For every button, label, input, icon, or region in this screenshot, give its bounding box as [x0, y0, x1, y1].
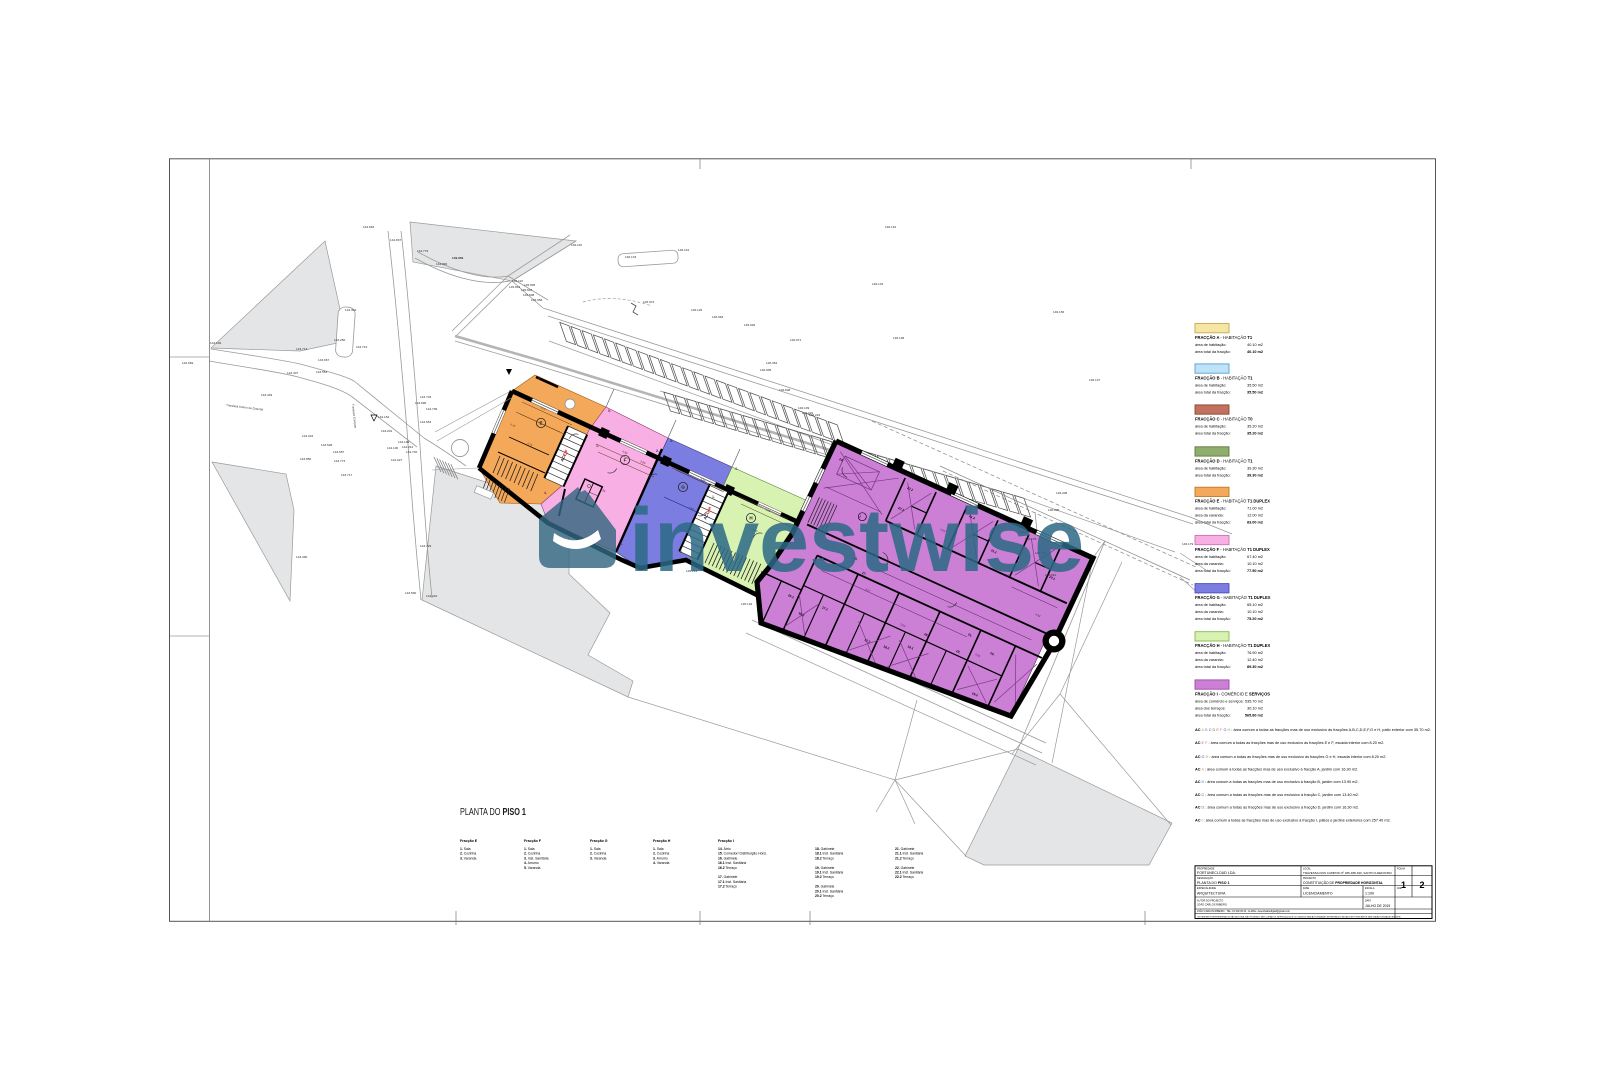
svg-text:143.657: 143.657 — [333, 450, 344, 454]
svg-text:145.194: 145.194 — [741, 602, 752, 606]
svg-text:143.554: 143.554 — [316, 370, 327, 374]
svg-text:17. Gabinete: 17. Gabinete — [718, 875, 738, 879]
svg-text:145.905: 145.905 — [524, 283, 535, 287]
svg-text:18. Gabinete: 18. Gabinete — [815, 847, 835, 851]
svg-text:144.890: 144.890 — [436, 262, 447, 266]
svg-text:22.2 Terraço: 22.2 Terraço — [895, 875, 914, 879]
svg-text:146.156: 146.156 — [1053, 310, 1064, 314]
svg-text:FRACÇÃO G - HABITAÇÃO T1 DUPLE: FRACÇÃO G - HABITAÇÃO T1 DUPLEX — [1195, 595, 1271, 600]
svg-text:Fracção E: Fracção E — [460, 839, 478, 843]
svg-text:17.2 Terraço: 17.2 Terraço — [718, 885, 737, 889]
svg-text:21.1 Inst. Sanitária: 21.1 Inst. Sanitária — [895, 852, 923, 856]
svg-text:144.250: 144.250 — [334, 338, 345, 342]
svg-text:146.161: 146.161 — [678, 248, 689, 252]
svg-text:146.115: 146.115 — [571, 243, 582, 247]
svg-text:143.717: 143.717 — [341, 473, 352, 477]
svg-text:144.818: 144.818 — [363, 225, 374, 229]
svg-text:20.2 Terraço: 20.2 Terraço — [815, 894, 834, 898]
svg-text:área de habitação:: área de habitação: — [1195, 343, 1226, 347]
svg-text:área total da fracção:: área total da fracção: — [1195, 569, 1231, 573]
svg-text:143.967: 143.967 — [318, 358, 329, 362]
svg-text:1:100: 1:100 — [1365, 891, 1374, 895]
svg-text:ESPECIALIDADE: ESPECIALIDADE — [1197, 887, 1216, 890]
svg-text:143.590: 143.590 — [405, 591, 416, 595]
svg-text:22.1 Inst. Sanitária: 22.1 Inst. Sanitária — [895, 871, 923, 875]
svg-text:40.10 m2: 40.10 m2 — [1247, 350, 1263, 354]
svg-text:146.905: 146.905 — [760, 368, 771, 372]
svg-text:39.30 m2: 39.30 m2 — [1247, 466, 1263, 470]
svg-text:AC E F : área comum a todas as: AC E F : área comum a todas as fracções … — [1195, 741, 1384, 745]
svg-text:145.608: 145.608 — [523, 293, 534, 297]
svg-text:16. Gabinete: 16. Gabinete — [718, 856, 738, 860]
svg-text:144.027: 144.027 — [391, 458, 402, 462]
svg-text:146.110: 146.110 — [512, 279, 523, 283]
svg-text:2.: 2. — [656, 449, 659, 453]
svg-text:535.70 m2: 535.70 m2 — [1245, 699, 1263, 703]
svg-text:40.10 m2: 40.10 m2 — [1247, 343, 1263, 347]
svg-text:DATA: DATA — [1365, 900, 1371, 903]
svg-text:PROJECTO: PROJECTO — [1303, 877, 1316, 880]
svg-text:144.201: 144.201 — [381, 429, 392, 433]
svg-text:PLANTA DO PISO 1: PLANTA DO PISO 1 — [1197, 881, 1230, 885]
svg-text:144.837: 144.837 — [390, 238, 401, 242]
svg-text:144.654: 144.654 — [420, 420, 431, 424]
svg-text:21.2 Terraço: 21.2 Terraço — [895, 856, 914, 860]
svg-text:144.162: 144.162 — [378, 415, 389, 419]
svg-text:3.: 3. — [620, 542, 623, 546]
svg-text:20.1 Inst. Sanitária: 20.1 Inst. Sanitária — [815, 889, 843, 893]
svg-text:1. Sala: 1. Sala — [460, 847, 471, 851]
svg-text:146.971: 146.971 — [790, 338, 801, 342]
svg-text:área da varanda:: área da varanda: — [1195, 562, 1224, 566]
svg-text:área de habitação:: área de habitação: — [1195, 651, 1226, 655]
svg-text:20. Gabinete: 20. Gabinete — [815, 885, 835, 889]
svg-text:área total da fracção:: área total da fracção: — [1195, 431, 1231, 435]
svg-text:19.2 Terraço: 19.2 Terraço — [815, 875, 834, 879]
svg-text:área da varanda:: área da varanda: — [1195, 514, 1224, 518]
svg-text:12.40 m2: 12.40 m2 — [1247, 658, 1263, 662]
svg-text:FRACÇÃO F - HABITAÇÃO T1 DUPLE: FRACÇÃO F - HABITAÇÃO T1 DUPLEX — [1195, 547, 1270, 552]
svg-text:22. Gabinete: 22. Gabinete — [895, 866, 915, 870]
svg-text:149.359: 149.359 — [452, 256, 463, 260]
svg-text:área da varanda:: área da varanda: — [1195, 658, 1224, 662]
svg-text:2. Cozinha: 2. Cozinha — [460, 852, 476, 856]
svg-text:área total da fracção:: área total da fracção: — [1195, 713, 1231, 717]
svg-text:FRACÇÃO I - COMÉRCIO E SERVIÇO: FRACÇÃO I - COMÉRCIO E SERVIÇOS — [1195, 691, 1270, 696]
svg-text:144.779: 144.779 — [417, 249, 428, 253]
svg-text:área de comércio e serviços:: área de comércio e serviços: — [1195, 699, 1244, 703]
svg-text:146.191: 146.191 — [885, 225, 896, 229]
svg-text:Fracção F: Fracção F — [524, 839, 542, 843]
svg-text:TRAVESSA DOS CAMPOS Nº 186-188: TRAVESSA DOS CAMPOS Nº 186-188-190, SANT… — [1303, 871, 1393, 875]
svg-text:12.00 m2: 12.00 m2 — [1247, 514, 1263, 518]
svg-text:área da varanda:: área da varanda: — [1195, 610, 1224, 614]
svg-text:144.199: 144.199 — [398, 440, 409, 444]
svg-text:área total da fracção:: área total da fracção: — [1195, 617, 1231, 621]
svg-text:F: F — [624, 458, 627, 463]
svg-text:AC A B C D E F G H : área comu: AC A B C D E F G H : área comum a todas … — [1195, 728, 1431, 732]
svg-text:área de habitação:: área de habitação: — [1195, 555, 1226, 559]
svg-text:área total da fracção:: área total da fracção: — [1195, 473, 1231, 477]
svg-text:DESIGNAÇÃO: DESIGNAÇÃO — [1197, 877, 1213, 880]
svg-text:10.10 m2: 10.10 m2 — [1247, 562, 1263, 566]
svg-text:143.528: 143.528 — [321, 443, 332, 447]
svg-text:1: 1 — [1401, 880, 1406, 890]
svg-text:18.2 Terraço: 18.2 Terraço — [815, 856, 834, 860]
svg-text:Fracção H: Fracção H — [653, 839, 671, 843]
svg-text:146.222: 146.222 — [809, 413, 820, 417]
svg-text:Fracção I: Fracção I — [718, 839, 734, 843]
svg-text:3. Inst. Sanitária: 3. Inst. Sanitária — [524, 856, 549, 860]
svg-text:144.706: 144.706 — [426, 407, 437, 411]
svg-text:área total da fracção:: área total da fracção: — [1195, 521, 1231, 525]
svg-text:G: G — [681, 485, 685, 490]
svg-text:35.50 m2: 35.50 m2 — [1247, 390, 1263, 394]
svg-text:19. Gabinete: 19. Gabinete — [815, 866, 835, 870]
svg-text:14. Átrio: 14. Átrio — [718, 847, 731, 851]
svg-text:75.20 m2: 75.20 m2 — [1247, 617, 1263, 621]
svg-text:146.908: 146.908 — [779, 388, 790, 392]
svg-text:146.354: 146.354 — [766, 361, 777, 365]
svg-text:146.109: 146.109 — [798, 406, 809, 410]
svg-text:565.80 m2: 565.80 m2 — [1245, 713, 1263, 717]
svg-text:3.: 3. — [670, 439, 673, 443]
svg-text:3. Arrumo: 3. Arrumo — [653, 856, 668, 860]
svg-text:143.449: 143.449 — [261, 393, 272, 397]
svg-text:FRACÇÃO A - HABITAÇÃO T1: FRACÇÃO A - HABITAÇÃO T1 — [1195, 335, 1253, 340]
svg-text:144.712: 144.712 — [356, 345, 367, 349]
svg-text:ESCALA: ESCALA — [1365, 887, 1375, 890]
svg-text:4. Arrumo: 4. Arrumo — [524, 861, 539, 865]
svg-text:145.644: 145.644 — [521, 288, 532, 292]
svg-text:143.106: 143.106 — [210, 341, 221, 345]
svg-text:área de habitação:: área de habitação: — [1195, 603, 1226, 607]
svg-text:143.773: 143.773 — [334, 459, 345, 463]
svg-text:35.20 m2: 35.20 m2 — [1247, 431, 1263, 435]
svg-text:145.844: 145.844 — [509, 285, 520, 289]
svg-text:área total da fracção:: área total da fracção: — [1195, 665, 1231, 669]
svg-text:área de habitação:: área de habitação: — [1195, 507, 1226, 511]
svg-text:AC A : área comum a todas as f: AC A : área comum a todas as fracções ma… — [1195, 767, 1358, 771]
svg-text:5.: 5. — [608, 409, 611, 413]
svg-text:21. Gabinete: 21. Gabinete — [895, 847, 915, 851]
svg-text:área de habitação:: área de habitação: — [1195, 383, 1226, 387]
svg-text:Fracção G: Fracção G — [590, 839, 608, 843]
svg-text:ARQUITECTURA: ARQUITECTURA — [1197, 891, 1226, 895]
svg-text:área de habitação:: área de habitação: — [1195, 424, 1226, 428]
svg-text:143.713: 143.713 — [296, 347, 307, 351]
svg-text:145.926: 145.926 — [744, 323, 755, 327]
svg-text:área total da fracção:: área total da fracção: — [1195, 350, 1231, 354]
svg-text:1. Sala: 1. Sala — [524, 847, 535, 851]
svg-text:89.30 m2: 89.30 m2 — [1247, 665, 1263, 669]
svg-text:144.696: 144.696 — [415, 401, 426, 405]
svg-text:143.407: 143.407 — [287, 371, 298, 375]
svg-text:LICENCIAMENTO: LICENCIAMENTO — [1303, 891, 1333, 895]
svg-text:143.850: 143.850 — [300, 457, 311, 461]
svg-text:área de habitação:: área de habitação: — [1195, 466, 1226, 470]
svg-text:143.242: 143.242 — [302, 434, 313, 438]
svg-text:2. Cozinha: 2. Cozinha — [590, 852, 606, 856]
svg-text:AC I : área comum a todas as f: AC I : área comum a todas as fracções ma… — [1195, 819, 1391, 823]
svg-text:144.212: 144.212 — [402, 445, 413, 449]
svg-text:4. Varanda: 4. Varanda — [653, 861, 669, 865]
svg-text:5. Varanda: 5. Varanda — [524, 866, 540, 870]
svg-text:67.40 m2: 67.40 m2 — [1247, 555, 1263, 559]
svg-text:FRACÇÃO C - HABITAÇÃO T0: FRACÇÃO C - HABITAÇÃO T0 — [1195, 416, 1253, 421]
svg-text:144.733: 144.733 — [420, 395, 431, 399]
svg-text:17.1 Inst. Sanitária: 17.1 Inst. Sanitária — [718, 880, 746, 884]
svg-text:FRACÇÃO H - HABITAÇÃO T1 DUPLE: FRACÇÃO H - HABITAÇÃO T1 DUPLEX — [1195, 643, 1270, 648]
svg-text:144.740: 144.740 — [406, 450, 417, 454]
svg-text:10.10 m2: 10.10 m2 — [1247, 610, 1263, 614]
svg-text:143.729: 143.729 — [420, 544, 431, 548]
svg-text:77.50 m2: 77.50 m2 — [1247, 569, 1263, 573]
svg-text:AC D : área comum a todas as f: AC D : área comum a todas as fracções ma… — [1195, 806, 1359, 810]
svg-text:CONSTITUIÇÃO DE PROPRIEDADE HO: CONSTITUIÇÃO DE PROPRIEDADE HORIZONTAL — [1303, 880, 1383, 885]
svg-text:146.137: 146.137 — [1089, 378, 1100, 382]
svg-text:146.963: 146.963 — [712, 315, 723, 319]
svg-text:1. Sala: 1. Sala — [653, 847, 664, 851]
svg-text:18.1 Inst. Sanitária: 18.1 Inst. Sanitária — [815, 852, 843, 856]
svg-text:39.30 m2: 39.30 m2 — [1247, 473, 1263, 477]
svg-text:35.20 m2: 35.20 m2 — [1247, 424, 1263, 428]
svg-text:área dos terraços:: área dos terraços: — [1195, 706, 1226, 710]
svg-text:142.669: 142.669 — [182, 361, 193, 365]
svg-text:FRACÇÃO E - HABITAÇÃO T1 DUPLE: FRACÇÃO E - HABITAÇÃO T1 DUPLEX — [1195, 499, 1270, 504]
svg-text:AC C : área comum a todas as f: AC C : área comum a todas as fracções ma… — [1195, 793, 1359, 797]
svg-text:investwise: investwise — [629, 491, 1084, 591]
svg-text:146.126: 146.126 — [691, 308, 702, 312]
svg-text:3. Varanda: 3. Varanda — [590, 856, 606, 860]
svg-text:30.10 m2: 30.10 m2 — [1247, 706, 1263, 710]
svg-text:3. Varanda: 3. Varanda — [460, 856, 476, 860]
svg-text:146.133: 146.133 — [625, 255, 636, 259]
svg-text:146.132: 146.132 — [872, 282, 883, 286]
svg-text:4.: 4. — [544, 491, 547, 495]
svg-text:35.50 m2: 35.50 m2 — [1247, 383, 1263, 387]
svg-text:FRACÇÃO B - HABITAÇÃO T1: FRACÇÃO B - HABITAÇÃO T1 — [1195, 375, 1253, 380]
svg-text:JOÃO CARLOS RIBEIRO · TEL: 91: JOÃO CARLOS RIBEIRO · TEL: 91 900 00 00 … — [1197, 910, 1290, 913]
svg-text:2. Cozinha: 2. Cozinha — [653, 852, 669, 856]
svg-text:16.2 Terraço: 16.2 Terraço — [718, 866, 737, 870]
svg-text:1. Sala: 1. Sala — [590, 847, 601, 851]
svg-text:2. Cozinha: 2. Cozinha — [524, 852, 540, 856]
svg-text:143.490: 143.490 — [296, 555, 307, 559]
svg-text:76.90 m2: 76.90 m2 — [1247, 651, 1263, 655]
svg-text:FORTUNECLOUD LDA.: FORTUNECLOUD LDA. — [1197, 871, 1236, 875]
svg-text:19.1 Inst. Sanitária: 19.1 Inst. Sanitária — [815, 871, 843, 875]
svg-text:144.210: 144.210 — [426, 594, 437, 598]
svg-text:71.00 m2: 71.00 m2 — [1247, 507, 1263, 511]
svg-text:JULHO DE 2019: JULHO DE 2019 — [1365, 904, 1390, 908]
svg-text:83.00 m2: 83.00 m2 — [1247, 521, 1263, 525]
svg-text:FASE: FASE — [1303, 887, 1310, 890]
svg-text:AC B : área comum a todas as f: AC B : área comum a todas as fracções ma… — [1195, 780, 1359, 784]
svg-text:OS DESENHOS REPRESENTADOS SÃO: OS DESENHOS REPRESENTADOS SÃO AUTORIA, N… — [1197, 915, 1401, 918]
svg-text:2.: 2. — [538, 376, 541, 380]
svg-text:AUTOR DO PROJECTO: AUTOR DO PROJECTO — [1197, 900, 1223, 903]
svg-text:área total da fracção:: área total da fracção: — [1195, 390, 1231, 394]
svg-text:146.179: 146.179 — [1182, 542, 1193, 546]
svg-text:146.196: 146.196 — [893, 336, 904, 340]
svg-text:2: 2 — [1419, 880, 1424, 890]
svg-text:AC G H : área comum a todas as: AC G H : área comum a todas as fracções … — [1195, 755, 1386, 759]
svg-text:65.10 m2: 65.10 m2 — [1247, 603, 1263, 607]
svg-text:FOLHA: FOLHA — [1397, 867, 1405, 870]
svg-text:144.304: 144.304 — [345, 308, 356, 312]
svg-text:16.1 Inst. Sanitária: 16.1 Inst. Sanitária — [718, 861, 746, 865]
svg-text:145.973: 145.973 — [643, 300, 654, 304]
svg-text:4.: 4. — [735, 467, 738, 471]
svg-text:145.958: 145.958 — [531, 298, 542, 302]
svg-text:PLANTA DO PISO 1: PLANTA DO PISO 1 — [460, 806, 526, 818]
svg-text:144.100: 144.100 — [387, 446, 398, 450]
svg-text:15. Comedor/ Distribuição Hori: 15. Comedor/ Distribuição Horiz. — [718, 852, 767, 856]
svg-text:FRACÇÃO D - HABITAÇÃO T1: FRACÇÃO D - HABITAÇÃO T1 — [1195, 458, 1253, 463]
